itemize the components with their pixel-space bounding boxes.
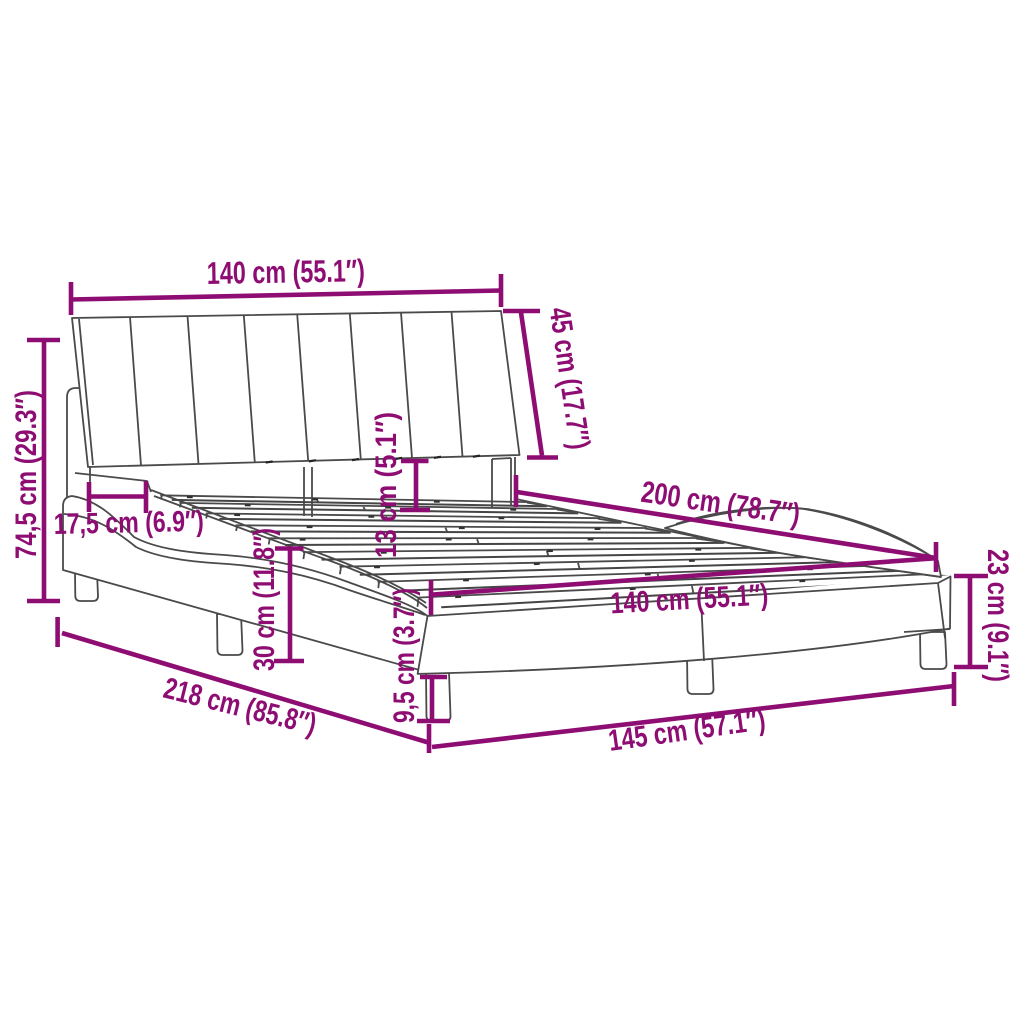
svg-text:74,5 cm (29.3″): 74,5 cm (29.3″) <box>10 390 43 559</box>
svg-text:9,5 cm (3.7″): 9,5 cm (3.7″) <box>388 588 421 723</box>
svg-text:23 cm (9.1″): 23 cm (9.1″) <box>981 549 1014 682</box>
svg-text:13 cm (5.1″): 13 cm (5.1″) <box>370 412 403 558</box>
svg-text:17,5 cm (6.9″): 17,5 cm (6.9″) <box>53 505 204 541</box>
svg-text:140 cm (55.1″): 140 cm (55.1″) <box>206 252 365 291</box>
svg-text:30 cm (11.8″): 30 cm (11.8″) <box>248 528 281 671</box>
